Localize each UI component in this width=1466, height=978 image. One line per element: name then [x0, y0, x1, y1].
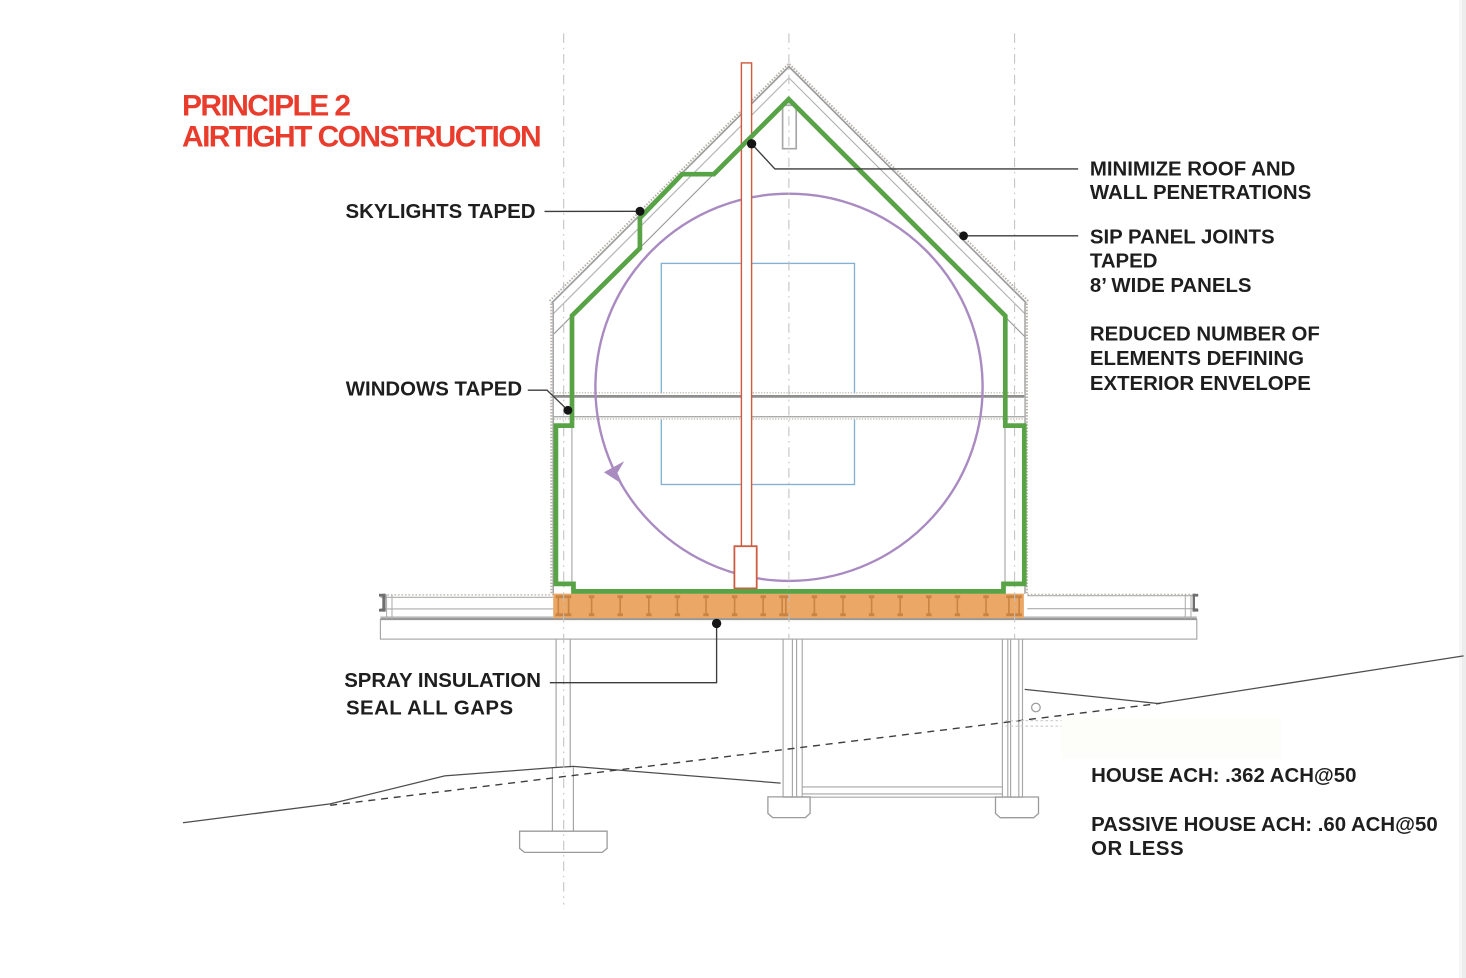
svg-text:AIRTIGHT CONSTRUCTION: AIRTIGHT CONSTRUCTION — [182, 120, 540, 153]
svg-text:SPRAY INSULATION: SPRAY INSULATION — [344, 670, 541, 692]
svg-text:MINIMIZE ROOF AND: MINIMIZE ROOF AND — [1090, 158, 1295, 180]
svg-text:TAPED: TAPED — [1090, 251, 1158, 273]
svg-text:WINDOWS TAPED: WINDOWS TAPED — [346, 379, 522, 401]
svg-text:8’ WIDE PANELS: 8’ WIDE PANELS — [1090, 275, 1252, 297]
svg-text:SIP PANEL JOINTS: SIP PANEL JOINTS — [1090, 227, 1275, 249]
svg-text:WALL PENETRATIONS: WALL PENETRATIONS — [1090, 182, 1311, 204]
svg-text:PASSIVE HOUSE ACH: .60 ACH@50: PASSIVE HOUSE ACH: .60 ACH@50 — [1091, 814, 1438, 836]
svg-text:SEAL ALL GAPS: SEAL ALL GAPS — [346, 697, 514, 719]
svg-text:SKYLIGHTS TAPED: SKYLIGHTS TAPED — [346, 201, 536, 223]
svg-text:PRINCIPLE 2: PRINCIPLE 2 — [182, 90, 350, 123]
svg-text:ELEMENTS DEFINING: ELEMENTS DEFINING — [1090, 348, 1304, 370]
svg-text:HOUSE ACH: .362 ACH@50: HOUSE ACH: .362 ACH@50 — [1091, 765, 1356, 787]
svg-text:OR LESS: OR LESS — [1091, 838, 1184, 860]
svg-text:EXTERIOR ENVELOPE: EXTERIOR ENVELOPE — [1090, 373, 1311, 395]
svg-text:REDUCED NUMBER OF: REDUCED NUMBER OF — [1090, 324, 1320, 346]
